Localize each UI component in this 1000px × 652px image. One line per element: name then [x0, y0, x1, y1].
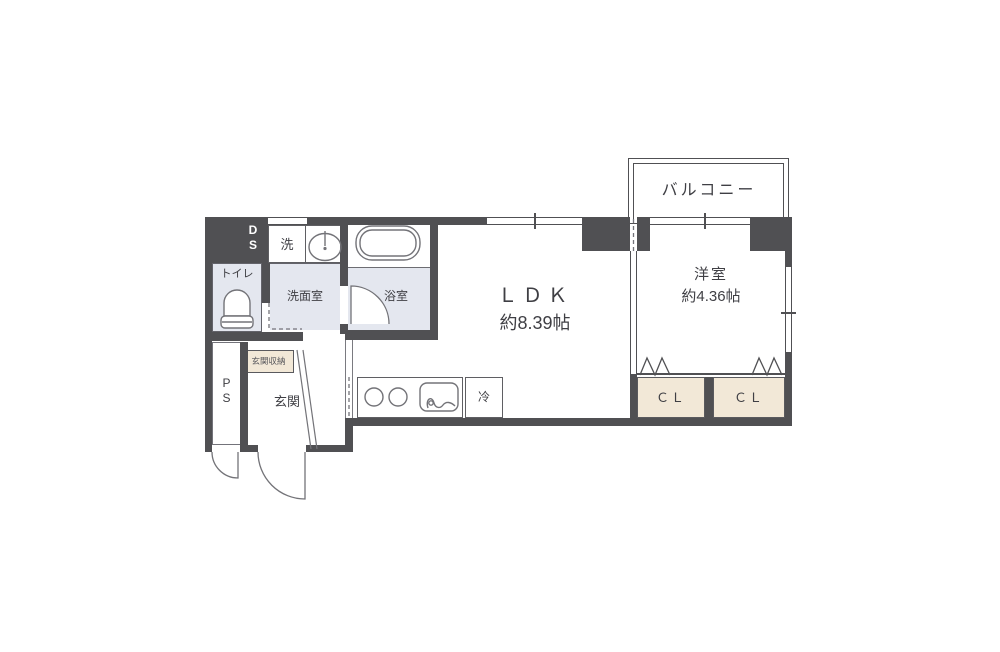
western-room-size: 約4.36帖: [637, 288, 785, 307]
folding-door-zigzag-icon: [640, 358, 782, 375]
stove-burners-icon: [365, 388, 407, 406]
entrance-storage-label: 玄関収納: [243, 356, 294, 367]
kitchen-sink-icon: [420, 383, 458, 411]
floor-plan: バルコニー 洋室 約4.36帖 ＬＤＫ 約8.39帖 ＣＬ ＣＬ トイレ 洗面室…: [0, 0, 1000, 652]
entrance-door-arc-icon: [258, 452, 305, 499]
entrance-label: 玄関: [246, 394, 328, 410]
western-room-label: 洋室: [637, 266, 785, 285]
balcony-label: バルコニー: [630, 181, 788, 201]
bathtub-icon: [356, 226, 420, 260]
bathroom-label: 浴室: [362, 289, 430, 304]
closet-right-label: ＣＬ: [713, 390, 785, 406]
washroom-label: 洗面室: [270, 289, 340, 304]
ldk-label: ＬＤＫ: [440, 284, 630, 309]
ps-door-arc-icon: [212, 452, 238, 478]
ldk-size: 約8.39帖: [440, 312, 630, 335]
duct-space-label: D S: [240, 223, 266, 253]
sink-icon: [309, 231, 341, 261]
fridge-label: 冷: [465, 390, 503, 405]
washer-label: 洗: [268, 237, 306, 253]
pipe-space-label: P S: [212, 376, 241, 406]
toilet-label: トイレ: [212, 268, 262, 282]
closet-left-label: ＣＬ: [637, 390, 705, 406]
toilet-icon: [221, 290, 253, 328]
